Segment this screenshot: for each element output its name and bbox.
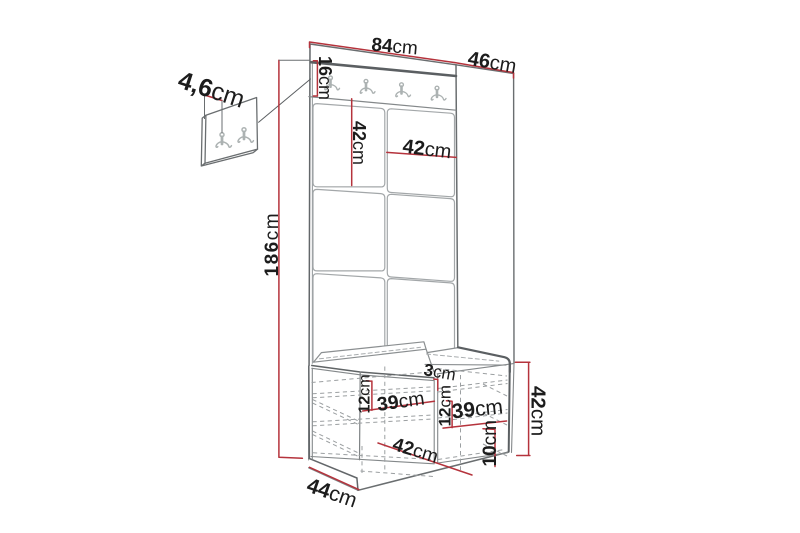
svg-text:42cm: 42cm [349, 121, 369, 165]
svg-text:16cm: 16cm [315, 56, 335, 100]
svg-text:84cm: 84cm [371, 35, 419, 60]
svg-text:10cm: 10cm [480, 420, 501, 466]
svg-text:12cm: 12cm [357, 374, 374, 413]
svg-text:186cm: 186cm [262, 212, 283, 277]
svg-text:42cm: 42cm [527, 386, 550, 436]
